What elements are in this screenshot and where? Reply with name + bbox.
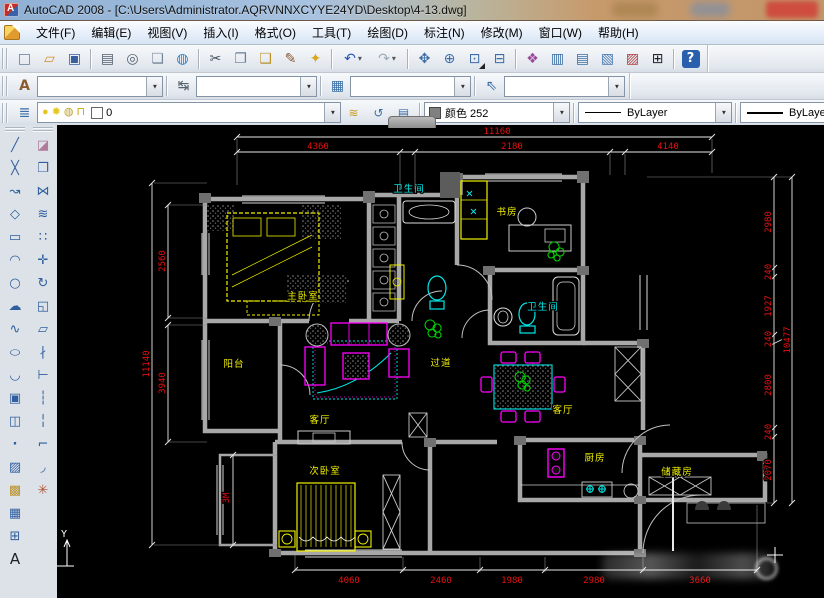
tool-palettes-icon: ▤ <box>576 52 589 66</box>
toolbar-separator <box>515 49 517 69</box>
zoom-window-button[interactable]: ⊡ <box>462 47 487 71</box>
left-toolbar-dock: ╱ ╳ ↝ ◇ ▭ ◠ ○ ☁ ∿ ○ ◡ ▣ ◫ · ▨ ▩ ▦ ⊞ A ◪ … <box>0 125 58 598</box>
hatch-icon: ▨ <box>9 461 21 474</box>
dropdown-arrow-icon[interactable] <box>146 77 162 96</box>
ellipse-button[interactable]: ○ <box>3 341 28 364</box>
dim-value: 2070 <box>764 459 774 481</box>
toolbar-grip[interactable] <box>2 48 9 70</box>
toolbar-end-border <box>629 73 631 99</box>
mtext-button[interactable]: A <box>3 548 28 571</box>
polyline-icon: ↝ <box>10 185 21 198</box>
stretch-icon: ▱ <box>38 323 48 336</box>
room-label: 卫生间 <box>527 301 559 313</box>
region-icon: ▦ <box>9 507 21 520</box>
fillet-button[interactable]: ◞ <box>31 456 56 479</box>
standard-toolbar: □ ▱ ▣ ▤ ◎ ❏ ◍ ✂ ❐ ❑ ✎ ✦ ↶ ↷ ✥ ⊕ ⊡ ⊟ ❖ ▥ … <box>0 45 824 73</box>
construction-line-icon: ╳ <box>11 162 19 175</box>
match-properties-button[interactable]: ✎ <box>278 47 303 71</box>
lineweight-sample <box>747 112 783 114</box>
cut-button[interactable]: ✂ <box>203 47 228 71</box>
gradient-icon: ▩ <box>9 484 21 497</box>
linetype-value: ByLayer <box>627 107 667 119</box>
dim-value: 2980 <box>764 211 774 233</box>
linetype-sample <box>585 112 621 113</box>
line-button[interactable]: ╱ <box>3 134 28 157</box>
room-label: 阳台 <box>223 358 244 370</box>
publish-button[interactable]: ❏ <box>145 47 170 71</box>
plot-icon: ▤ <box>101 52 114 66</box>
dim-value: 2980 <box>583 576 605 586</box>
copy-button[interactable]: ❐ <box>228 47 253 71</box>
table-style-icon: ▦ <box>331 79 344 93</box>
match-properties-icon: ✎ <box>285 52 297 66</box>
explode-button[interactable]: ✳ <box>31 479 56 502</box>
layer-select[interactable]: ● ✹ ◍ ⊓ 0 <box>37 102 341 123</box>
dim-value: 1980 <box>501 576 523 586</box>
room-label: 书房 <box>496 206 517 218</box>
text-style-button[interactable]: A <box>12 74 37 98</box>
second-bedroom-furniture <box>279 413 427 551</box>
spline-button[interactable]: ∿ <box>3 318 28 341</box>
chamfer-button[interactable]: ⌐ <box>31 433 56 456</box>
room-label: 客厅 <box>309 414 330 426</box>
undo-button[interactable]: ↶ <box>336 47 370 71</box>
designcenter-button[interactable]: ▥ <box>545 47 570 71</box>
toolbar-end-border <box>707 45 709 72</box>
extend-button[interactable]: ⊢ <box>31 364 56 387</box>
room-label: 过道 <box>430 357 451 369</box>
menu-format[interactable]: 格式(O) <box>247 22 304 43</box>
toolbar-separator <box>198 49 200 69</box>
layer-name: 0 <box>106 107 112 119</box>
floor-plan: 主卧室 卫生间 书房 卫生间 阳台 客厅 过道 客厅 次卧室 厨房 储藏房 11… <box>57 125 824 598</box>
trim-button[interactable]: ∤ <box>31 341 56 364</box>
properties-palette-button[interactable]: ❖ <box>520 47 545 71</box>
linetype-select[interactable]: ByLayer <box>578 102 732 123</box>
zoom-previous-icon: ⊟ <box>494 52 506 66</box>
fillet-icon: ◞ <box>40 461 45 474</box>
pan-button[interactable]: ✥ <box>412 47 437 71</box>
paste-icon: ❑ <box>259 52 272 66</box>
dim-value: 4140 <box>657 142 679 152</box>
circle-icon: ○ <box>9 277 20 290</box>
break-button[interactable]: ╎ <box>31 410 56 433</box>
docked-toolbar-tab[interactable] <box>388 116 436 128</box>
move-icon: ✛ <box>38 254 49 267</box>
text-style-icon: A <box>19 79 30 93</box>
layer-manager-button[interactable]: ≣ <box>12 101 37 125</box>
zoom-window-icon: ⊡ <box>469 52 481 66</box>
dim-style-button[interactable]: ↹ <box>171 74 196 98</box>
layer-previous-icon: ↺ <box>373 107 383 119</box>
new-icon: □ <box>18 52 31 66</box>
ucs-y-label: Y <box>61 529 67 540</box>
menu-modify[interactable]: 修改(M) <box>473 22 531 43</box>
dim-value: 11160 <box>483 127 510 137</box>
tool-palettes-button[interactable]: ▤ <box>570 47 595 71</box>
make-object-layer-current-button[interactable]: ≋ <box>341 101 366 125</box>
layer-color-swatch <box>91 107 103 119</box>
toolbar-grip[interactable] <box>2 103 9 123</box>
ellipse-icon: ○ <box>9 348 20 356</box>
rectangle-icon: ▭ <box>9 231 21 244</box>
toolbar-separator <box>90 49 92 69</box>
dim-style-select[interactable] <box>196 76 317 97</box>
sheet-set-manager-icon: ▧ <box>601 52 614 66</box>
dim-value: 11140 <box>142 350 152 377</box>
erase-button[interactable]: ◪ <box>31 134 56 157</box>
toolbar-separator <box>320 76 322 96</box>
revcloud-button[interactable]: ☁ <box>3 295 28 318</box>
copy-object-button[interactable]: ❐ <box>31 157 56 180</box>
dim-value: 240 <box>764 424 774 440</box>
scale-icon: ◱ <box>37 300 49 313</box>
table-style-select[interactable] <box>350 76 471 97</box>
offset-button[interactable]: ≋ <box>31 203 56 226</box>
dim-value: 240 <box>764 264 774 280</box>
open-icon: ▱ <box>44 52 55 66</box>
make-block-icon: ◫ <box>9 415 21 428</box>
redo-button[interactable]: ↷ <box>370 47 404 71</box>
open-button[interactable]: ▱ <box>37 47 62 71</box>
toolbar-separator <box>407 49 409 69</box>
ellipse-arc-icon: ◡ <box>9 369 20 382</box>
menu-window[interactable]: 窗口(W) <box>531 22 590 43</box>
table-button[interactable]: ⊞ <box>3 525 28 548</box>
text-style-select[interactable] <box>37 76 163 97</box>
offset-icon: ≋ <box>38 208 49 221</box>
mleader-style-select[interactable] <box>504 76 625 97</box>
drawing-canvas[interactable]: 主卧室 卫生间 书房 卫生间 阳台 客厅 过道 客厅 次卧室 厨房 储藏房 11… <box>57 125 824 598</box>
toolbar-separator <box>331 49 333 69</box>
polygon-button[interactable]: ◇ <box>3 203 28 226</box>
dim-value: 10477 <box>783 326 793 353</box>
save-button[interactable]: ▣ <box>62 47 87 71</box>
block-editor-button[interactable]: ✦ <box>303 47 328 71</box>
make-block-button[interactable]: ◫ <box>3 410 28 433</box>
menu-view[interactable]: 视图(V) <box>139 22 195 43</box>
room-label: 储藏房 <box>661 466 693 478</box>
region-button[interactable]: ▦ <box>3 502 28 525</box>
dim-value: 4360 <box>307 142 329 152</box>
toolbar-grip[interactable] <box>5 127 26 132</box>
toolbar-separator <box>673 49 675 69</box>
menu-bar: 文件(F) 编辑(E) 视图(V) 插入(I) 格式(O) 工具(T) 绘图(D… <box>0 21 824 45</box>
zoom-realtime-icon: ⊕ <box>444 52 456 66</box>
point-icon: · <box>13 438 18 451</box>
gradient-button[interactable]: ▩ <box>3 479 28 502</box>
3d-dwf-icon: ◍ <box>176 52 188 66</box>
lineweight-select[interactable]: ByLayer <box>740 102 824 123</box>
room-label: 主卧室 <box>287 290 319 302</box>
3d-dwf-button[interactable]: ◍ <box>170 47 195 71</box>
toolbar-separator <box>573 103 575 123</box>
menu-file[interactable]: 文件(F) <box>28 22 83 43</box>
menu-edit[interactable]: 编辑(E) <box>83 22 139 43</box>
close-button[interactable] <box>766 1 818 18</box>
room-label: 厨房 <box>584 452 605 464</box>
scale-button[interactable]: ◱ <box>31 295 56 318</box>
block-editor-icon: ✦ <box>310 52 322 66</box>
layer-vp-freeze-icon[interactable]: ◍ <box>64 107 74 118</box>
properties-palette-icon: ❖ <box>526 52 539 66</box>
rotate-button[interactable]: ↻ <box>31 272 56 295</box>
layer-manager-icon: ≣ <box>19 106 31 120</box>
toolbar-separator <box>735 103 737 123</box>
menu-dimension[interactable]: 标注(N) <box>416 22 473 43</box>
array-button[interactable]: ∷ <box>31 226 56 249</box>
table-style-button[interactable]: ▦ <box>325 74 350 98</box>
walls <box>205 177 765 553</box>
revcloud-icon: ☁ <box>9 300 22 313</box>
mtext-icon: A <box>10 552 20 567</box>
insert-block-icon: ▣ <box>9 392 21 405</box>
hatch-button[interactable]: ▨ <box>3 456 28 479</box>
copy-icon: ❐ <box>234 52 247 66</box>
dropdown-arrow-icon[interactable] <box>715 103 731 122</box>
table-icon: ⊞ <box>10 530 21 543</box>
extend-icon: ⊢ <box>37 369 48 382</box>
circle-button[interactable]: ○ <box>3 272 28 295</box>
color-value: 颜色 252 <box>445 105 488 121</box>
publish-icon: ❏ <box>151 52 164 66</box>
titlebar-blur-decoration <box>690 2 730 17</box>
help-button[interactable]: ? <box>678 47 703 71</box>
styles-toolbar: A ↹ ▦ ⇖ <box>0 73 824 100</box>
titlebar-blur-decoration <box>612 2 658 17</box>
mleader-style-icon: ⇖ <box>486 79 498 93</box>
window-title: AutoCAD 2008 - [C:\Users\Administrator.A… <box>24 3 467 17</box>
break-icon: ╎ <box>39 415 47 428</box>
dim-value: 4060 <box>338 576 360 586</box>
break-at-point-icon: ┆ <box>39 392 47 405</box>
menu-tools[interactable]: 工具(T) <box>304 22 359 43</box>
move-button[interactable]: ✛ <box>31 249 56 272</box>
explode-icon: ✳ <box>38 484 49 497</box>
cut-icon: ✂ <box>210 52 222 66</box>
plot-preview-button[interactable]: ◎ <box>120 47 145 71</box>
quickcalc-icon: ⊞ <box>652 52 664 66</box>
undo-dropdown-icon[interactable] <box>358 54 362 63</box>
room-label: 卫生间 <box>393 183 425 195</box>
zoom-realtime-button[interactable]: ⊕ <box>437 47 462 71</box>
arc-button[interactable]: ◠ <box>3 249 28 272</box>
line-icon: ╱ <box>11 139 19 152</box>
toolbar-grip[interactable] <box>33 127 54 132</box>
layer-on-bulb-icon[interactable]: ● <box>42 107 49 118</box>
toolbar-separator <box>166 76 168 96</box>
dropdown-arrow-icon[interactable] <box>300 77 316 96</box>
stretch-button[interactable]: ▱ <box>31 318 56 341</box>
layer-lock-icon[interactable]: ⊓ <box>76 107 85 118</box>
dim-value: 2800 <box>764 374 774 396</box>
markup-set-manager-icon: ▨ <box>626 52 639 66</box>
point-button[interactable]: · <box>3 433 28 456</box>
new-button[interactable]: □ <box>12 47 37 71</box>
mirror-button[interactable]: ⋈ <box>31 180 56 203</box>
save-icon: ▣ <box>68 52 81 66</box>
color-select[interactable]: 颜色 252 <box>424 102 570 123</box>
dim-value: 3M <box>222 492 232 503</box>
dropdown-arrow-icon[interactable] <box>553 103 569 122</box>
menu-draw[interactable]: 绘图(D) <box>359 22 416 43</box>
dim-value: 3940 <box>158 372 168 394</box>
menu-insert[interactable]: 插入(I) <box>195 22 246 43</box>
ucs-icon: Y <box>57 529 74 566</box>
ellipse-arc-button[interactable]: ◡ <box>3 364 28 387</box>
dropdown-arrow-icon[interactable] <box>454 77 470 96</box>
dim-value: 240 <box>764 331 774 347</box>
study-furniture <box>461 181 571 261</box>
polyline-button[interactable]: ↝ <box>3 180 28 203</box>
designcenter-icon: ▥ <box>551 52 564 66</box>
paste-button[interactable]: ❑ <box>253 47 278 71</box>
polygon-icon: ◇ <box>10 208 20 221</box>
dropdown-arrow-icon[interactable] <box>324 103 340 122</box>
dwg-file-icon <box>4 25 20 40</box>
layer-freeze-sun-icon[interactable]: ✹ <box>52 107 61 118</box>
room-label: 客厅 <box>552 404 573 416</box>
dim-value: 2180 <box>501 142 523 152</box>
trim-icon: ∤ <box>40 346 47 359</box>
redo-dropdown-icon[interactable] <box>392 54 396 63</box>
chamfer-icon: ⌐ <box>38 438 49 451</box>
menu-help[interactable]: 帮助(H) <box>590 22 647 43</box>
plot-preview-icon: ◎ <box>126 52 138 66</box>
dropdown-arrow-icon[interactable] <box>608 77 624 96</box>
make-object-layer-current-icon: ≋ <box>348 107 358 119</box>
pan-icon: ✥ <box>419 52 431 66</box>
break-at-point-button[interactable]: ┆ <box>31 387 56 410</box>
rectangle-button[interactable]: ▭ <box>3 226 28 249</box>
insert-block-button[interactable]: ▣ <box>3 387 28 410</box>
construction-line-button[interactable]: ╳ <box>3 157 28 180</box>
toolbar-separator <box>474 76 476 96</box>
array-icon: ∷ <box>39 231 47 244</box>
dim-value: 2460 <box>430 576 452 586</box>
dim-value: 2560 <box>158 250 168 272</box>
lineweight-value: ByLayer <box>789 107 824 119</box>
draw-toolbar: ╱ ╳ ↝ ◇ ▭ ◠ ○ ☁ ∿ ○ ◡ ▣ ◫ · ▨ ▩ ▦ ⊞ A <box>2 127 28 571</box>
copy-object-icon: ❐ <box>37 162 49 175</box>
zoom-previous-button[interactable]: ⊟ <box>487 47 512 71</box>
autocad-logo-icon <box>4 3 19 17</box>
toolbar-grip[interactable] <box>2 76 9 97</box>
watermark <box>755 557 778 580</box>
mirror-icon: ⋈ <box>37 185 50 198</box>
help-icon: ? <box>687 52 695 65</box>
room-label: 次卧室 <box>309 465 341 477</box>
arc-icon: ◠ <box>9 254 20 267</box>
rotate-icon: ↻ <box>38 277 49 290</box>
mleader-style-button[interactable]: ⇖ <box>479 74 504 98</box>
spline-icon: ∿ <box>10 323 21 336</box>
undo-icon: ↶ <box>344 52 356 66</box>
dim-value: 1927 <box>764 295 774 317</box>
redo-icon: ↷ <box>378 52 390 66</box>
dim-style-icon: ↹ <box>178 79 190 93</box>
watermark <box>602 553 774 579</box>
plot-button[interactable]: ▤ <box>95 47 120 71</box>
title-bar[interactable]: AutoCAD 2008 - [C:\Users\Administrator.A… <box>0 0 824 21</box>
quickcalc-button[interactable]: ⊞ <box>645 47 670 71</box>
modify-toolbar: ◪ ❐ ⋈ ≋ ∷ ✛ ↻ ◱ ▱ ∤ ⊢ ┆ ╎ ⌐ ◞ ✳ <box>30 127 56 502</box>
erase-icon: ◪ <box>37 139 49 152</box>
sheet-set-manager-button[interactable]: ▧ <box>595 47 620 71</box>
markup-set-manager-button[interactable]: ▨ <box>620 47 645 71</box>
